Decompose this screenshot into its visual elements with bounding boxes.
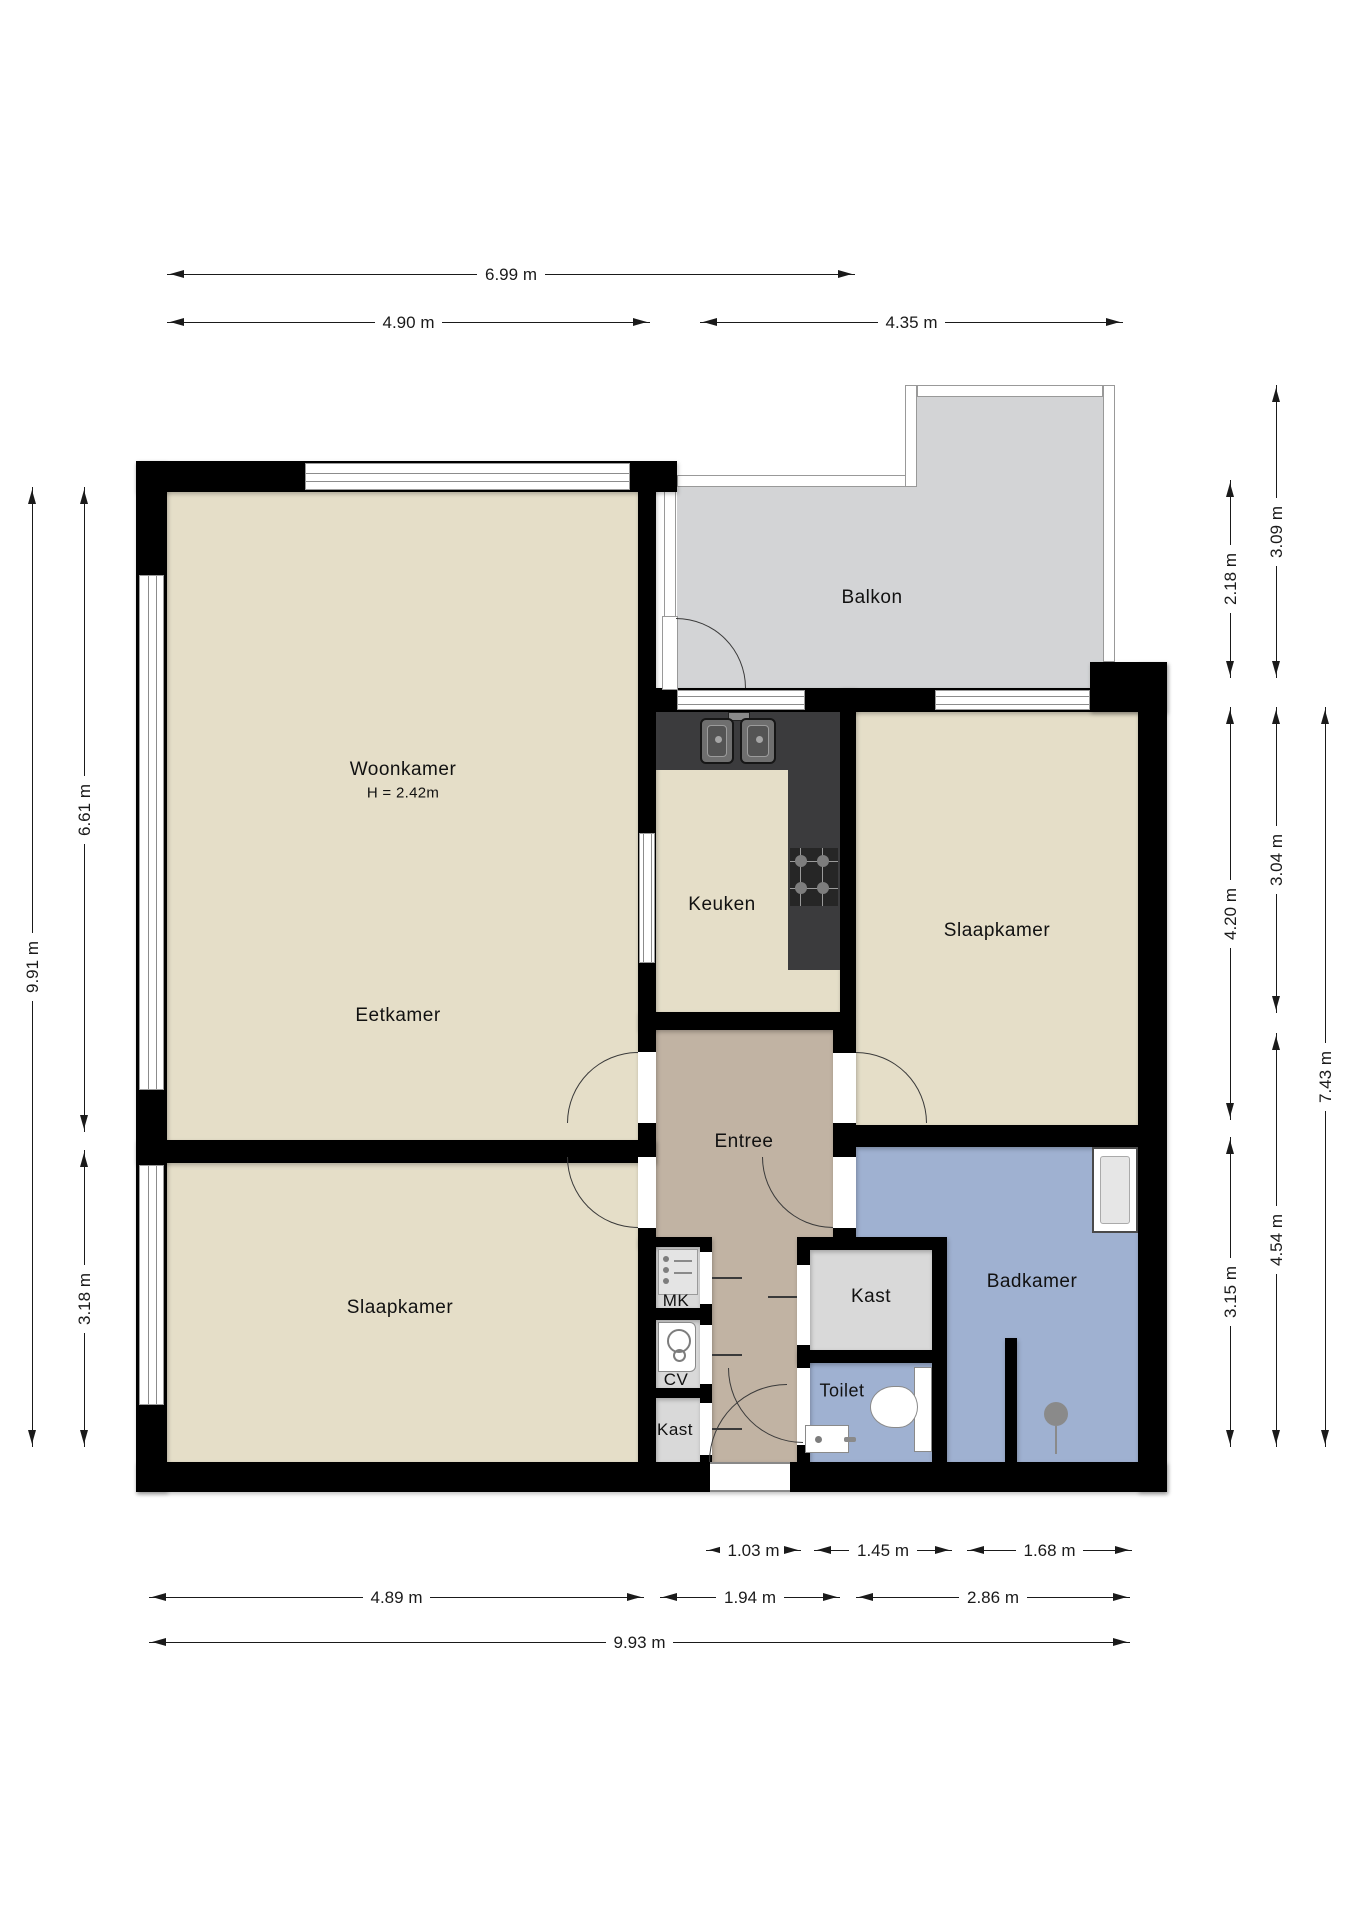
dimension-label: 3.04 m [1267, 826, 1287, 894]
bathtub-icon [1092, 1147, 1138, 1233]
door-opening-slaapkamer-links [638, 1157, 656, 1228]
dimension-left-318: 3.18 m [84, 1150, 85, 1447]
woonkamer-height-label: H = 2.42m [367, 785, 439, 802]
dimension-label: 6.61 m [75, 776, 95, 844]
stove-hob-icon [790, 848, 838, 906]
door-leaf-kast-klein [712, 1428, 742, 1430]
dimension-label: 1.68 m [1016, 1541, 1084, 1561]
badkamer-label: Badkamer [987, 1271, 1078, 1293]
dimension-right-454: 4.54 m [1276, 1033, 1277, 1447]
dimension-label: 3.15 m [1221, 1258, 1241, 1326]
dimension-label: 3.09 m [1267, 498, 1287, 566]
front-door-threshold [710, 1462, 790, 1492]
dimension-label: 1.94 m [716, 1588, 784, 1608]
dimension-label: 1.45 m [849, 1541, 917, 1561]
dimension-right-420: 4.20 m [1230, 707, 1231, 1120]
entree-label: Entree [715, 1131, 774, 1153]
door-leaf-mk [712, 1277, 742, 1279]
slaapkamer-rechts-label: Slaapkamer [944, 920, 1050, 942]
woonkamer-label: Woonkamer [350, 759, 457, 781]
shower-arm-icon [1055, 1426, 1057, 1454]
door-opening-slaapkamer-rechts [833, 1053, 856, 1123]
wall-center-vertical [638, 487, 656, 1462]
wall-right [1138, 662, 1167, 1492]
toilet-label: Toilet [819, 1381, 864, 1402]
slaapkamer-rechts-floor [856, 712, 1138, 1125]
balkon-railing-right [1103, 385, 1115, 662]
woonkamer-floor [167, 492, 640, 1140]
balkon-railing-step [905, 385, 917, 487]
dimension-label: 9.91 m [23, 933, 43, 1001]
wall-keuken-slaapkamer [840, 688, 856, 1012]
dimension-label: 3.18 m [75, 1265, 95, 1333]
door-opening-eetkamer [638, 1052, 656, 1123]
cv-kast-label: CV [664, 1370, 689, 1390]
dimension-left-991: 9.91 m [32, 487, 33, 1447]
dimension-right-304: 3.04 m [1276, 707, 1277, 1013]
window-woonkamer-left [139, 575, 164, 1090]
dimension-bottom-286: 2.86 m [856, 1597, 1130, 1598]
toilet-bowl-icon [870, 1386, 918, 1428]
shower-head-icon [1044, 1402, 1068, 1426]
kast-groot-label: Kast [851, 1286, 891, 1308]
dimension-right-743: 7.43 m [1325, 707, 1326, 1447]
wall-shower-partition [1005, 1338, 1017, 1462]
door-leaf-cv [712, 1354, 742, 1356]
dimension-right-309: 3.09 m [1276, 385, 1277, 678]
dimension-label: 2.86 m [959, 1588, 1027, 1608]
balkon-label: Balkon [841, 587, 902, 609]
dimension-label: 4.20 m [1221, 880, 1241, 948]
dimension-bottom-168: 1.68 m [967, 1550, 1132, 1551]
dimension-bottom-145: 1.45 m [814, 1550, 952, 1551]
balkon-floor-upper [917, 397, 1103, 488]
dimension-bottom-993: 9.93 m [149, 1642, 1130, 1643]
window-slaapkamer-top [935, 690, 1090, 710]
dimension-label: 4.89 m [363, 1588, 431, 1608]
kast-klein-label: Kast [657, 1420, 693, 1440]
dimension-label: 4.35 m [878, 313, 946, 333]
balkon-railing-top-right [917, 385, 1103, 397]
cv-boiler-icon [658, 1322, 696, 1372]
dimension-left-661: 6.61 m [84, 487, 85, 1132]
dimension-right-315: 3.15 m [1230, 1137, 1231, 1447]
dimension-bottom-489: 4.89 m [149, 1597, 644, 1598]
door-leaf-kast-groot [768, 1296, 797, 1298]
door-opening-badkamer [833, 1157, 856, 1228]
door-opening-kast-groot [797, 1265, 810, 1345]
wall-kast-top [797, 1237, 947, 1250]
wall-badkamer-top [833, 1125, 1138, 1147]
door-opening-cv [700, 1325, 712, 1384]
dimension-label: 2.18 m [1221, 545, 1241, 613]
eetkamer-label: Eetkamer [355, 1005, 440, 1027]
dimension-right-218: 2.18 m [1230, 480, 1231, 678]
dimension-top-490: 4.90 m [167, 322, 650, 323]
meterkast-label: MK [663, 1291, 690, 1311]
wall-kast-bottom [797, 1350, 932, 1363]
dimension-label: 4.54 m [1267, 1206, 1287, 1274]
wall-closet-top [638, 1237, 712, 1247]
kitchen-sink-left-icon [700, 718, 734, 764]
wall-bottom [136, 1462, 1167, 1492]
dimension-label: 9.93 m [606, 1633, 674, 1653]
window-keuken-top [677, 690, 805, 710]
dimension-bottom-194: 1.94 m [660, 1597, 840, 1598]
dimension-top-699: 6.99 m [167, 274, 855, 275]
dimension-label: 4.90 m [375, 313, 443, 333]
dimension-top-435: 4.35 m [700, 322, 1123, 323]
window-slaapkamer-left [139, 1165, 164, 1405]
door-opening-mk [700, 1252, 712, 1304]
window-woonkamer-top [305, 463, 630, 490]
dimension-bottom-103: 1.03 m [706, 1550, 801, 1551]
dimension-label: 7.43 m [1316, 1043, 1336, 1111]
wall-keuken-bottom [638, 1012, 856, 1030]
meter-panel-icon [658, 1249, 698, 1295]
dimension-label: 6.99 m [477, 265, 545, 285]
window-partition-keuken [639, 833, 655, 963]
slaapkamer-links-label: Slaapkamer [347, 1297, 453, 1319]
dimension-label: 1.03 m [720, 1541, 788, 1561]
keuken-label: Keuken [688, 894, 755, 916]
floorplan: Woonkamer H = 2.42m Eetkamer Slaapkamer … [0, 0, 1358, 1920]
wall-kast-right [932, 1250, 947, 1462]
kitchen-sink-right-icon [740, 718, 776, 764]
washbasin-icon [805, 1425, 849, 1453]
balkon-railing-top-left [677, 475, 907, 487]
